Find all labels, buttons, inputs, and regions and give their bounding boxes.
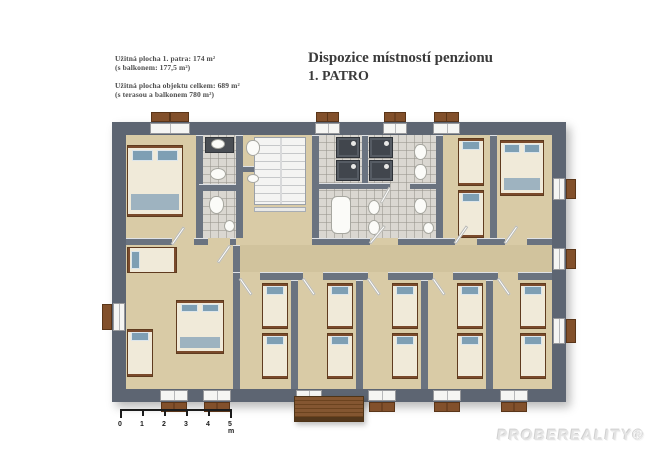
bed-single (520, 283, 546, 329)
window-shutter (151, 112, 189, 122)
pillow (181, 304, 198, 313)
window-shutter (434, 112, 459, 122)
pillow (202, 304, 219, 313)
window (500, 390, 528, 401)
stair-railing (254, 207, 306, 212)
pillow (331, 336, 349, 344)
bed-single (127, 329, 153, 377)
toilet (246, 140, 260, 156)
interior-wall (230, 238, 236, 245)
shower-stall (336, 137, 360, 158)
pillow (131, 332, 149, 341)
window (433, 390, 461, 401)
sink (423, 222, 434, 234)
interior-wall (518, 272, 552, 280)
window-shutter (102, 304, 112, 330)
window-shutter (566, 179, 576, 199)
pillow (131, 251, 141, 268)
interior-wall (421, 280, 428, 389)
sink (368, 200, 380, 215)
window (383, 123, 407, 134)
bathtub (331, 196, 351, 234)
pillow (461, 286, 479, 294)
page: Užitná plocha 1. patra: 174 m² (s balkon… (0, 0, 662, 468)
interior-wall (453, 272, 498, 280)
interior-wall (486, 280, 493, 389)
interior-wall (233, 245, 240, 389)
pillow (524, 144, 540, 153)
scale-label: 2 (162, 421, 166, 428)
scale-tick (164, 409, 166, 416)
bed-double (500, 140, 544, 196)
interior-wall (410, 183, 436, 189)
floor-plan (0, 0, 662, 468)
toilet (414, 164, 427, 180)
bed-single (520, 333, 546, 379)
bed-double (176, 300, 224, 354)
scale-label: 1 (140, 421, 144, 428)
shower-stall (336, 160, 360, 181)
bed-single (127, 247, 177, 273)
window (315, 123, 340, 134)
window-shutter (316, 112, 339, 122)
bed-single (457, 283, 483, 329)
pillow (132, 150, 153, 162)
duvet-band (504, 178, 541, 190)
sink (224, 220, 235, 232)
bed-single (327, 283, 353, 329)
window-shutter (369, 402, 395, 412)
pillow (396, 286, 414, 294)
scale-tick (142, 409, 144, 416)
bed-single (327, 333, 353, 379)
toilet (209, 196, 224, 214)
window (368, 390, 396, 401)
bed-single (457, 333, 483, 379)
scale-tick (230, 409, 232, 418)
pillow (462, 141, 480, 150)
pillow (524, 286, 542, 294)
interior-wall (126, 238, 172, 245)
duvet-band (180, 337, 221, 348)
interior-wall (490, 135, 497, 238)
window-shutter (434, 402, 460, 412)
staircase (254, 137, 306, 205)
window (553, 248, 565, 270)
scale-label: 0 (118, 421, 122, 428)
bed-single (458, 138, 484, 186)
scale-tick (208, 409, 210, 416)
sink (247, 174, 259, 183)
window (433, 123, 460, 134)
bed-single (392, 333, 418, 379)
shower-stall (369, 160, 393, 181)
pillow (524, 336, 542, 344)
interior-wall (436, 135, 443, 238)
scale-tick (186, 409, 188, 416)
interior-wall (236, 135, 243, 238)
bed-double (127, 145, 183, 217)
pillow (266, 286, 284, 294)
watermark: PROBEREALITY® (496, 427, 646, 444)
bed-single (262, 283, 288, 329)
interior-wall (323, 272, 368, 280)
interior-wall (312, 238, 370, 245)
sink (211, 139, 225, 149)
window (113, 303, 125, 331)
pillow (461, 336, 479, 344)
window (553, 318, 565, 344)
sink (210, 168, 226, 180)
outer-wall (112, 122, 126, 402)
window-shutter (384, 112, 406, 122)
interior-wall (388, 272, 433, 280)
scale-bar: 012345 m (120, 409, 240, 435)
interior-wall (199, 184, 236, 191)
interior-wall (260, 272, 303, 280)
interior-wall (527, 238, 552, 245)
interior-wall (319, 183, 390, 189)
interior-wall (356, 280, 363, 389)
pillow (157, 150, 178, 162)
pillow (504, 144, 520, 153)
interior-wall (362, 135, 368, 183)
interior-wall (291, 280, 298, 389)
interior-wall (477, 238, 505, 245)
window-shutter (566, 249, 576, 269)
balcony-deck (294, 396, 364, 422)
window-shutter (501, 402, 527, 412)
interior-wall (398, 238, 455, 245)
toilet (414, 144, 427, 160)
scale-label: 3 (184, 421, 188, 428)
window (160, 390, 188, 401)
window-shutter (566, 319, 576, 343)
scale-bar-line (120, 409, 231, 411)
scale-label: 5 m (228, 421, 240, 435)
scale-label: 4 (206, 421, 210, 428)
pillow (266, 336, 284, 344)
window (150, 123, 190, 134)
corridor-floor (240, 245, 552, 272)
pillow (331, 286, 349, 294)
toilet (414, 198, 427, 214)
interior-wall (194, 238, 208, 245)
scale-tick (120, 409, 122, 418)
pillow (462, 193, 480, 202)
shower-stall (369, 137, 393, 158)
pillow (396, 336, 414, 344)
bed-single (262, 333, 288, 379)
duvet-band (131, 194, 179, 209)
interior-wall (312, 135, 319, 238)
window (203, 390, 231, 401)
window (553, 178, 565, 200)
bed-single (392, 283, 418, 329)
